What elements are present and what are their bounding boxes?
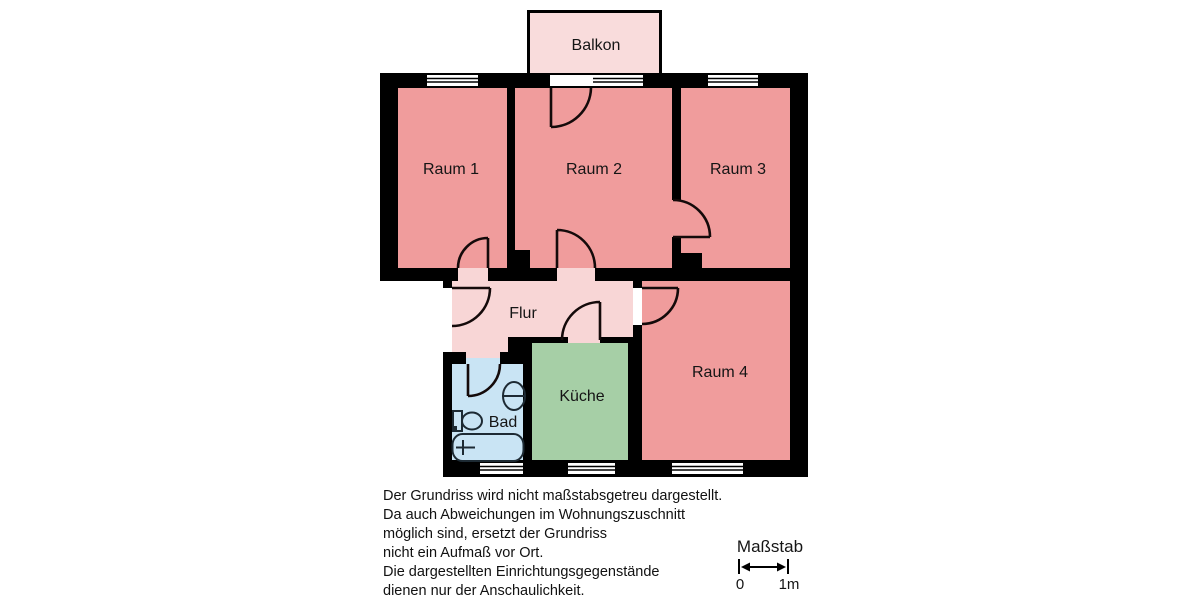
label-raum-1: Raum 1 [423, 161, 479, 178]
label-raum-4: Raum 4 [692, 364, 748, 381]
floorplan-page: Raum 1 Raum 2 Raum 3 Raum 4 Flur Küche B… [0, 0, 1200, 600]
disclaimer-line: nicht ein Aufmaß vor Ort. [383, 544, 743, 563]
opening-entrance [443, 288, 452, 352]
opening-flur-bad-top [466, 352, 500, 358]
opening-flur-bad-bottom [466, 358, 500, 364]
label-flur: Flur [509, 305, 537, 322]
opening-raum2-raum3 [672, 200, 681, 237]
window-kueche [568, 463, 615, 474]
wall-stub-raum2-raum3 [672, 253, 702, 268]
scale-title: Maßstab [737, 537, 803, 556]
disclaimer-line: Da auch Abweichungen im Wohnungszuschnit… [383, 506, 743, 525]
scale-arrowhead-right [777, 563, 786, 572]
disclaimer-line: Die dargestellten Einrichtungsgegenständ… [383, 563, 743, 582]
label-bad: Bad [489, 414, 517, 431]
opening-balcony-door [550, 75, 593, 86]
window-raum1 [427, 75, 478, 86]
window-raum3 [708, 75, 758, 86]
label-raum-2: Raum 2 [566, 161, 622, 178]
window-bad [480, 463, 523, 474]
opening-flur-raum4 [633, 288, 642, 325]
room-raum-2 [515, 88, 672, 268]
label-balkon: Balkon [572, 37, 621, 54]
scale-indicator: Maßstab 0 1m [736, 537, 803, 593]
disclaimer-text: Der Grundriss wird nicht maßstabsgetreu … [383, 487, 743, 601]
label-kueche: Küche [559, 388, 604, 405]
window-raum2 [593, 75, 643, 86]
opening-flur-kueche [568, 335, 600, 343]
disclaimer-line: Der Grundriss wird nicht maßstabsgetreu … [383, 487, 743, 506]
scale-end-label: 1m [779, 576, 800, 593]
label-raum-3: Raum 3 [710, 161, 766, 178]
disclaimer-line: möglich sind, ersetzt der Grundriss [383, 525, 743, 544]
room-flur [452, 281, 633, 337]
window-raum4 [672, 463, 743, 474]
opening-raum2-flur [557, 268, 595, 281]
room-flur-left-lobe [452, 337, 508, 352]
opening-raum1-flur [458, 268, 488, 281]
room-raum-3 [681, 88, 790, 268]
wall-stub-raum1-raum2 [507, 250, 530, 268]
disclaimer-line: dienen nur der Anschaulichkeit. [383, 582, 743, 601]
room-raum-1 [398, 88, 507, 268]
